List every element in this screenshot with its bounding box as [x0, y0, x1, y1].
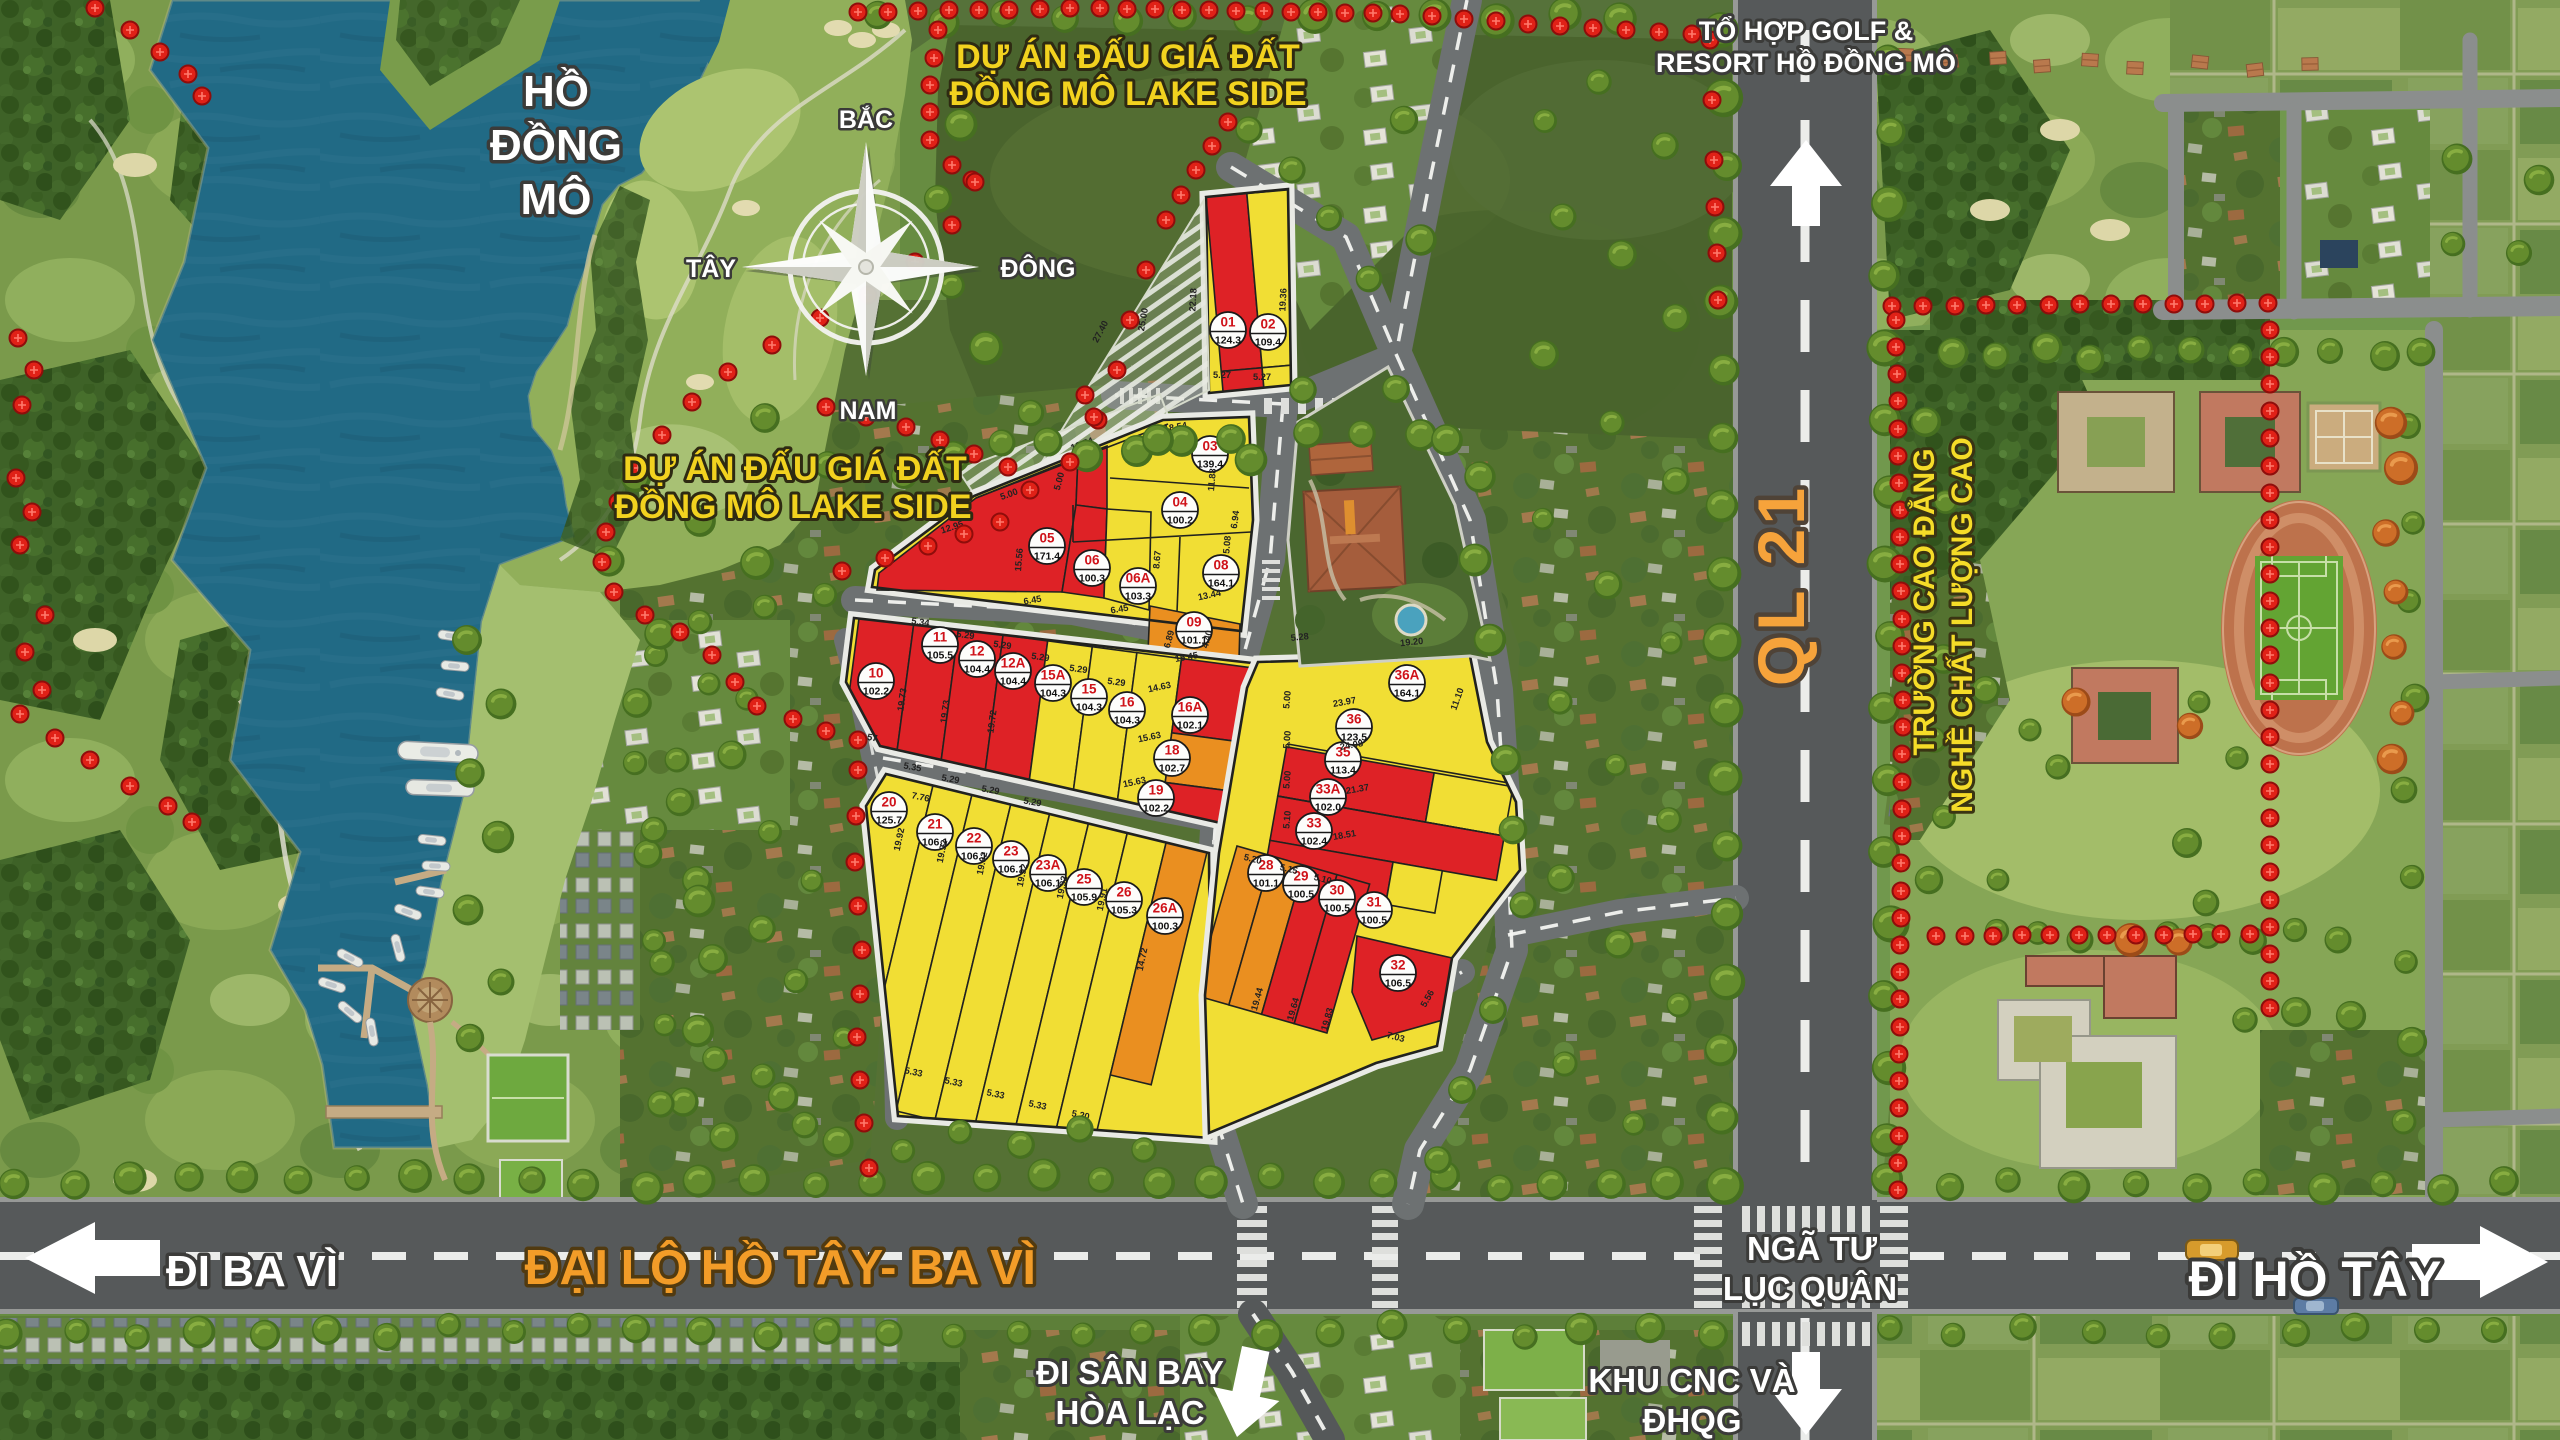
svg-text:100.3: 100.3: [1079, 573, 1105, 585]
svg-text:20: 20: [881, 795, 896, 810]
svg-text:23A: 23A: [1036, 858, 1061, 873]
svg-text:104.4: 104.4: [964, 664, 990, 676]
svg-text:105.3: 105.3: [1111, 905, 1137, 917]
svg-text:02: 02: [1260, 317, 1275, 332]
svg-text:100.5: 100.5: [1361, 915, 1387, 927]
svg-text:05: 05: [1039, 531, 1055, 546]
svg-text:104.3: 104.3: [1114, 715, 1140, 727]
svg-text:31: 31: [1366, 895, 1382, 910]
svg-text:125.7: 125.7: [876, 815, 902, 827]
svg-text:15A: 15A: [1041, 668, 1066, 683]
svg-text:MÔ: MÔ: [521, 173, 592, 224]
svg-text:ĐẠI LỘ HỒ TÂY- BA VÌ: ĐẠI LỘ HỒ TÂY- BA VÌ: [525, 1240, 1036, 1295]
svg-text:TỔ HỢP GOLF &: TỔ HỢP GOLF &: [1699, 15, 1914, 46]
svg-text:ĐI BA VÌ: ĐI BA VÌ: [166, 1246, 338, 1296]
svg-text:KHU CNC VÀ: KHU CNC VÀ: [1588, 1362, 1795, 1399]
svg-text:25: 25: [1076, 872, 1092, 887]
svg-text:102.1: 102.1: [1177, 720, 1203, 732]
svg-text:26: 26: [1116, 885, 1132, 900]
svg-text:102.2: 102.2: [863, 686, 889, 698]
svg-text:5.28: 5.28: [1290, 631, 1309, 643]
svg-text:104.3: 104.3: [1040, 688, 1066, 700]
svg-text:TRƯỜNG CAO ĐẲNG: TRƯỜNG CAO ĐẲNG: [1907, 448, 1941, 755]
svg-text:NGÃ TƯ: NGÃ TƯ: [1747, 1230, 1878, 1267]
svg-text:DỰ ÁN ĐẤU GIÁ ĐẤT: DỰ ÁN ĐẤU GIÁ ĐẤT: [623, 450, 967, 488]
svg-text:102.2: 102.2: [1143, 803, 1169, 815]
svg-text:QL 21: QL 21: [1744, 484, 1818, 686]
svg-text:16: 16: [1119, 695, 1135, 710]
svg-text:32: 32: [1390, 958, 1405, 973]
svg-text:04: 04: [1172, 495, 1188, 510]
svg-text:8.67: 8.67: [1151, 550, 1163, 569]
svg-text:5.00: 5.00: [1281, 730, 1293, 749]
svg-text:DỰ ÁN ĐẤU GIÁ ĐẤT: DỰ ÁN ĐẤU GIÁ ĐẤT: [956, 38, 1300, 76]
svg-text:104.3: 104.3: [1076, 702, 1102, 714]
svg-text:11: 11: [933, 630, 948, 645]
svg-text:33A: 33A: [1316, 782, 1341, 797]
svg-text:ĐHQG: ĐHQG: [1643, 1402, 1742, 1439]
svg-text:30: 30: [1329, 883, 1344, 898]
svg-text:06: 06: [1084, 553, 1100, 568]
svg-text:5.08: 5.08: [1221, 535, 1233, 554]
svg-text:TÂY: TÂY: [686, 253, 736, 283]
svg-text:03: 03: [1202, 439, 1218, 454]
svg-text:22: 22: [966, 831, 981, 846]
svg-text:08: 08: [1213, 558, 1229, 573]
svg-text:36A: 36A: [1395, 668, 1420, 683]
svg-text:5.27: 5.27: [1213, 370, 1231, 380]
svg-text:106.5: 106.5: [1385, 978, 1411, 990]
svg-text:22.18: 22.18: [1187, 288, 1198, 312]
svg-text:19: 19: [1148, 783, 1163, 798]
svg-text:102.4: 102.4: [1301, 836, 1327, 848]
svg-text:18: 18: [1164, 743, 1180, 758]
svg-text:109.4: 109.4: [1255, 337, 1281, 349]
svg-text:21: 21: [927, 817, 943, 832]
svg-text:5.10: 5.10: [1281, 810, 1293, 829]
svg-text:12: 12: [969, 644, 984, 659]
svg-text:101.1: 101.1: [1253, 878, 1279, 890]
svg-text:06A: 06A: [1126, 571, 1151, 586]
svg-text:ĐỒNG MÔ LAKE SIDE: ĐỒNG MÔ LAKE SIDE: [614, 487, 971, 526]
svg-text:36: 36: [1346, 712, 1362, 727]
svg-text:ĐI SÂN BAY: ĐI SÂN BAY: [1036, 1354, 1224, 1391]
svg-text:103.3: 103.3: [1125, 591, 1151, 603]
svg-text:16A: 16A: [1178, 700, 1203, 715]
svg-text:RESORT HỒ ĐỒNG MÔ: RESORT HỒ ĐỒNG MÔ: [1656, 47, 1956, 78]
svg-text:113.4: 113.4: [1330, 765, 1356, 777]
svg-text:15: 15: [1081, 682, 1097, 697]
svg-text:HỒ: HỒ: [523, 66, 589, 116]
svg-text:164.1: 164.1: [1208, 578, 1234, 590]
svg-text:BẮC: BẮC: [839, 104, 893, 134]
svg-text:10: 10: [868, 666, 883, 681]
svg-text:12A: 12A: [1001, 656, 1026, 671]
svg-text:5.00: 5.00: [1281, 690, 1293, 709]
svg-text:23: 23: [1003, 844, 1019, 859]
svg-text:NAM: NAM: [840, 397, 897, 425]
svg-text:171.4: 171.4: [1034, 551, 1060, 563]
svg-text:09: 09: [1186, 615, 1201, 630]
svg-text:105.9: 105.9: [1071, 892, 1097, 904]
svg-text:LỤC QUÂN: LỤC QUÂN: [1723, 1270, 1897, 1307]
svg-text:104.4: 104.4: [1000, 676, 1026, 688]
svg-text:100.3: 100.3: [1152, 921, 1178, 933]
svg-text:100.2: 100.2: [1167, 515, 1193, 527]
svg-text:5.27: 5.27: [1253, 372, 1271, 382]
svg-text:26A: 26A: [1153, 901, 1178, 916]
svg-text:ĐỒNG MÔ LAKE SIDE: ĐỒNG MÔ LAKE SIDE: [949, 74, 1306, 113]
svg-text:102.7: 102.7: [1159, 763, 1185, 775]
svg-text:164.1: 164.1: [1394, 688, 1420, 700]
svg-text:HÒA LẠC: HÒA LẠC: [1055, 1394, 1204, 1431]
svg-text:33: 33: [1306, 816, 1322, 831]
svg-text:105.5: 105.5: [927, 650, 953, 662]
svg-text:5.00: 5.00: [1281, 770, 1293, 789]
svg-text:ĐỒNG: ĐỒNG: [490, 120, 622, 170]
svg-text:01: 01: [1220, 315, 1236, 330]
svg-text:100.5: 100.5: [1324, 903, 1350, 915]
svg-text:19.36: 19.36: [1277, 288, 1288, 312]
svg-text:100.5: 100.5: [1288, 889, 1314, 901]
svg-text:124.3: 124.3: [1215, 335, 1241, 347]
svg-text:11.88: 11.88: [1206, 468, 1218, 492]
svg-text:NGHỀ CHẤT LƯỢNG CAO: NGHỀ CHẤT LƯỢNG CAO: [1945, 437, 1979, 812]
svg-text:ĐÔNG: ĐÔNG: [1001, 253, 1076, 283]
svg-text:15.56: 15.56: [1013, 548, 1025, 572]
svg-text:ĐI HỒ TÂY: ĐI HỒ TÂY: [2189, 1251, 2442, 1307]
svg-text:102.0: 102.0: [1315, 802, 1341, 814]
